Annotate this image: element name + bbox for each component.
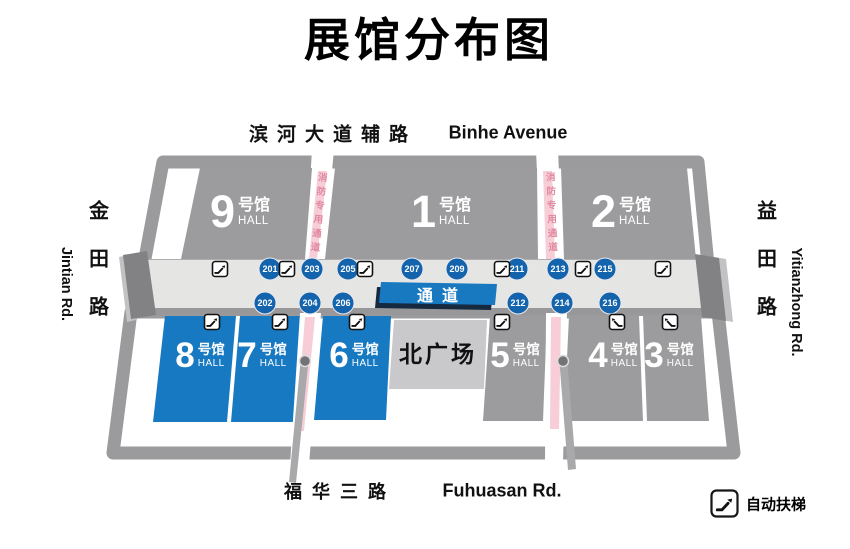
escalator-icon-mirrored: [610, 315, 625, 330]
north-plaza-label: 北广场: [399, 335, 477, 369]
hall-5-word: HALL: [513, 358, 540, 369]
hall-8-suffix: 号馆: [198, 343, 225, 358]
gate-204: 204: [297, 298, 323, 308]
map-canvas: [0, 0, 850, 549]
hall-9-label: 9 号馆HALL: [210, 193, 270, 231]
hall-7-word: HALL: [260, 358, 287, 369]
hall-7-suffix: 号馆: [260, 343, 287, 358]
gate-202: 202: [252, 298, 278, 308]
legend-escalator-box: [712, 491, 738, 517]
gate-211: 211: [504, 264, 530, 274]
hall-7-number: 7: [237, 341, 256, 371]
road-bottom-en: Fuhuasan Rd.: [442, 481, 561, 502]
hall-2-word: HALL: [619, 214, 651, 227]
hall-6-label: 6 号馆HALL: [329, 341, 378, 371]
hall-6-number: 6: [329, 341, 348, 371]
hall-3-suffix: 号馆: [667, 343, 694, 358]
hall-1-suffix: 号馆: [439, 197, 471, 215]
hall-1-label: 1 号馆HALL: [411, 193, 471, 231]
hall-3-word: HALL: [667, 358, 694, 369]
hall-8-label: 8 号馆HALL: [175, 341, 224, 371]
hall-8-word: HALL: [198, 358, 225, 369]
hall-2-label: 2 号馆HALL: [591, 193, 651, 231]
hall-1-number: 1: [411, 193, 436, 231]
hall-5-label: 5 号馆HALL: [490, 341, 539, 371]
gate-206: 206: [330, 298, 356, 308]
escalator-icon: [350, 315, 365, 330]
lane-pole-left-cap: [300, 356, 311, 367]
gate-207: 207: [399, 264, 425, 274]
escalator-icon-mirrored: [663, 315, 678, 330]
road-top-cn: 滨河大道辅路: [249, 120, 417, 147]
road-bottom-cn: 福华三路: [284, 478, 396, 504]
gate-215: 215: [592, 264, 618, 274]
gate-205: 205: [335, 264, 361, 274]
road-left-en: Jintian Rd.: [58, 247, 74, 321]
hall-6-word: HALL: [352, 358, 379, 369]
escalator-icon: [576, 262, 591, 277]
hall-3-number: 3: [644, 341, 663, 371]
hall-4-suffix: 号馆: [611, 343, 638, 358]
hall-6-suffix: 号馆: [352, 343, 379, 358]
hall-9-number: 9: [210, 193, 235, 231]
hall-4-word: HALL: [611, 358, 638, 369]
escalator-icon: [213, 262, 228, 277]
hall-4-number: 4: [588, 341, 607, 371]
hall-8-number: 8: [175, 341, 194, 371]
road-right-cn: 益田路: [751, 200, 780, 344]
escalator-icon: [656, 262, 671, 277]
exhibition-map: 展馆分布图 滨河大道辅路 Binhe Avenue 福华三路 Fuhuasan …: [0, 0, 850, 549]
road-left-cn: 金田路: [83, 200, 112, 344]
escalator-icon: [273, 315, 288, 330]
gate-203: 203: [299, 264, 325, 274]
hall-1-word: HALL: [439, 214, 471, 227]
gate-209: 209: [444, 264, 470, 274]
hall-3-label: 3 号馆HALL: [644, 341, 693, 371]
hall-2-suffix: 号馆: [619, 197, 651, 215]
escalator-icon: [495, 315, 510, 330]
hall-4-label: 4 号馆HALL: [588, 341, 637, 371]
road-top-en: Binhe Avenue: [449, 123, 568, 144]
escalator-icon: [205, 315, 220, 330]
hall-5-suffix: 号馆: [513, 343, 540, 358]
gate-212: 212: [505, 298, 531, 308]
gate-214: 214: [549, 298, 575, 308]
hall-9-word: HALL: [238, 214, 270, 227]
hall-5-number: 5: [490, 341, 509, 371]
hall-2-number: 2: [591, 193, 616, 231]
road-right-en: Yitianzhong Rd.: [788, 247, 804, 356]
gate-216: 216: [597, 298, 623, 308]
gate-201: 201: [257, 264, 283, 274]
page-title: 展馆分布图: [304, 4, 554, 70]
fire-lane-text-right: 消防专用通道: [542, 172, 559, 256]
corridor-banner-label: 通道: [417, 282, 467, 306]
legend-escalator-label: 自动扶梯: [746, 494, 806, 515]
lane-pole-right-cap: [558, 356, 569, 367]
hall-9-suffix: 号馆: [238, 197, 270, 215]
gate-213: 213: [545, 264, 571, 274]
hall-7-label: 7 号馆HALL: [237, 341, 286, 371]
